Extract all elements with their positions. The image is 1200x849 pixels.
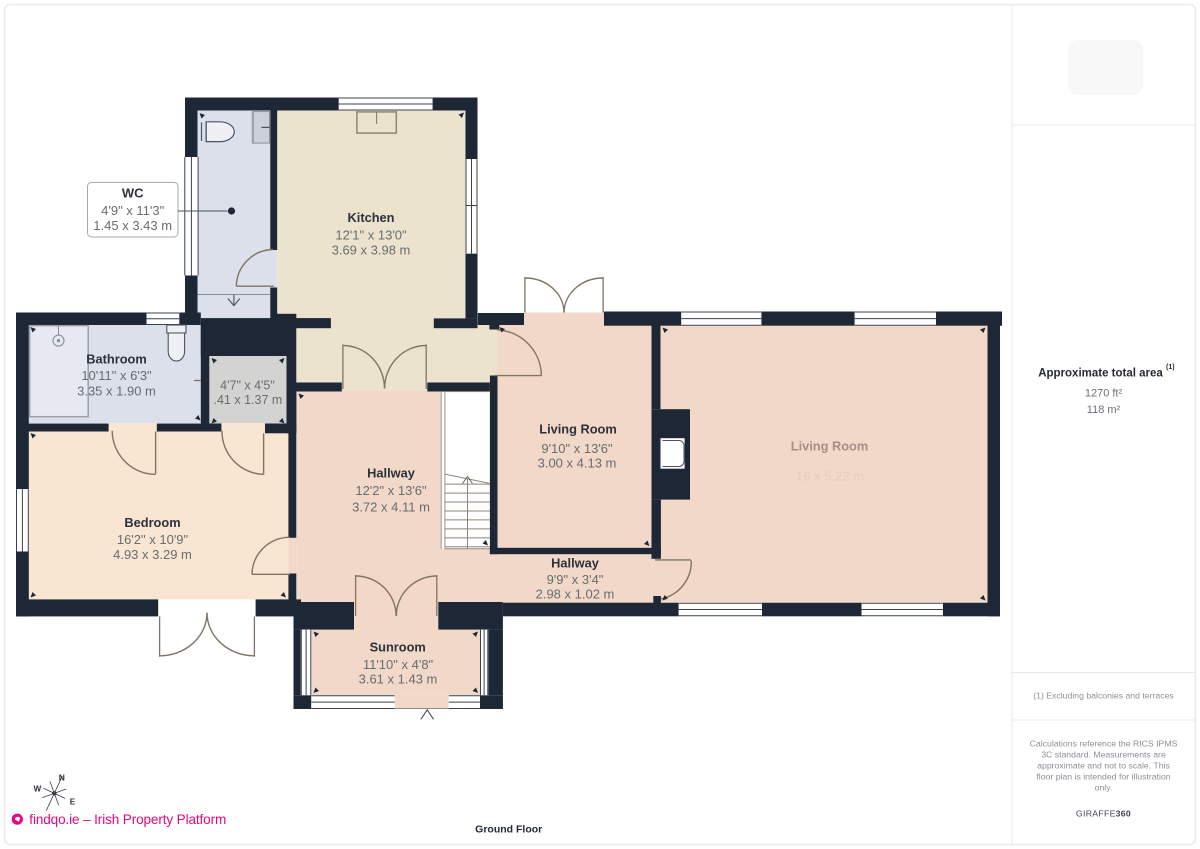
svg-text:Living Room: Living Room (791, 439, 869, 454)
svg-text:4'9" x 11'3": 4'9" x 11'3" (101, 203, 164, 218)
svg-text:only.: only. (1095, 783, 1113, 793)
svg-text:118 m²: 118 m² (1087, 404, 1121, 416)
svg-text:W: W (34, 785, 42, 794)
svg-text:1270 ft²: 1270 ft² (1085, 388, 1123, 400)
svg-text:10'11" x 6'3": 10'11" x 6'3" (81, 368, 152, 383)
svg-text:3.35 x 1.90 m: 3.35 x 1.90 m (77, 384, 156, 399)
svg-text:4.93 x 3.29 m: 4.93 x 3.29 m (113, 547, 192, 562)
svg-text:GIRAFFE360: GIRAFFE360 (1076, 809, 1131, 819)
svg-text:E: E (70, 798, 76, 807)
svg-text:4'7" x 4'5": 4'7" x 4'5" (220, 379, 275, 393)
svg-text:(1): (1) (1166, 364, 1175, 371)
svg-text:3.69 x 3.98 m: 3.69 x 3.98 m (332, 243, 411, 258)
svg-text:Ground Floor: Ground Floor (475, 824, 542, 836)
svg-text:2.98 x 1.02 m: 2.98 x 1.02 m (536, 587, 615, 602)
svg-text:Calculations reference the RIC: Calculations reference the RICS IPMS (1030, 739, 1178, 749)
svg-text:floor plan is intended for ill: floor plan is intended for illustration (1036, 772, 1170, 782)
svg-text:.41 x 1.37 m: .41 x 1.37 m (214, 393, 283, 407)
svg-text:9'10" x 13'6": 9'10" x 13'6" (541, 441, 613, 456)
svg-text:Hallway: Hallway (551, 556, 600, 571)
svg-text:(1) Excluding balconies and te: (1) Excluding balconies and terraces (1033, 691, 1174, 701)
svg-text:1.45 x 3.43 m: 1.45 x 3.43 m (93, 218, 172, 233)
svg-text:11'10" x 4'8": 11'10" x 4'8" (363, 657, 434, 672)
svg-text:12'1" x 13'0": 12'1" x 13'0" (335, 228, 407, 243)
svg-text:9'9" x 3'4": 9'9" x 3'4" (547, 572, 604, 587)
svg-text:WC: WC (122, 186, 144, 201)
svg-text:Living Room: Living Room (539, 422, 617, 437)
svg-text:approximate and not to scale.: approximate and not to scale. This (1037, 761, 1170, 771)
svg-text:Kitchen: Kitchen (348, 210, 395, 225)
svg-text:16'2" x 10'9": 16'2" x 10'9" (117, 532, 189, 547)
svg-text:3.72 x 4.11 m: 3.72 x 4.11 m (352, 500, 430, 515)
svg-text:Bedroom: Bedroom (124, 515, 180, 530)
svg-text:12'2" x 13'6": 12'2" x 13'6" (355, 483, 427, 498)
svg-text:3.61 x 1.43 m: 3.61 x 1.43 m (359, 672, 438, 687)
svg-text:Hallway: Hallway (367, 466, 416, 481)
svg-text:16 x 5.22 m: 16 x 5.22 m (796, 469, 864, 484)
svg-text:Approximate total area: Approximate total area (1038, 368, 1163, 380)
svg-text:N: N (59, 773, 65, 783)
svg-text:findqo.ie – Irish Property Pla: findqo.ie – Irish Property Platform (29, 812, 226, 827)
svg-text:Bathroom: Bathroom (86, 352, 146, 367)
svg-text:3.00 x 4.13 m: 3.00 x 4.13 m (538, 456, 617, 471)
svg-text:Sunroom: Sunroom (370, 640, 426, 655)
svg-text:3C standard. Measurements are: 3C standard. Measurements are (1041, 750, 1166, 760)
